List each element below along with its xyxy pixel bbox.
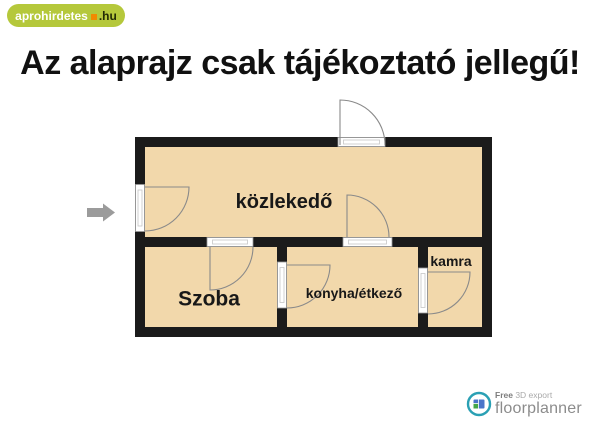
- door-frame-konyha: [278, 262, 287, 308]
- door-frame-szoba: [207, 238, 253, 247]
- entrance-arrow-icon: [87, 204, 115, 222]
- floorplanner-free-label: Free: [495, 390, 513, 400]
- room-label-kozlekedo: közlekedő: [236, 192, 333, 212]
- door-frame-top: [338, 138, 385, 147]
- floorplanner-watermark: Free 3D export floorplanner: [466, 389, 582, 419]
- room-label-szoba: Szoba: [178, 289, 240, 310]
- floorplanner-tagline: Free 3D export: [495, 391, 582, 400]
- wall-bottom: [135, 327, 492, 337]
- floorplanner-export-label: 3D export: [513, 390, 552, 400]
- floorplanner-brand: floorplanner: [495, 401, 582, 417]
- wall-right: [482, 137, 492, 337]
- door-frame-entrance: [136, 185, 145, 232]
- room-label-kamra: kamra: [430, 254, 471, 268]
- floorplanner-icon: [466, 391, 492, 417]
- wall-divider-horizontal: [145, 237, 482, 247]
- floorplanner-text: Free 3D export floorplanner: [495, 391, 582, 417]
- wall-left: [135, 137, 145, 337]
- wall-top: [135, 137, 492, 147]
- door-frame-kamra: [419, 268, 428, 313]
- door-frame-konyha-hall: [343, 238, 392, 247]
- room-label-konyha: konyha/étkező: [306, 286, 402, 300]
